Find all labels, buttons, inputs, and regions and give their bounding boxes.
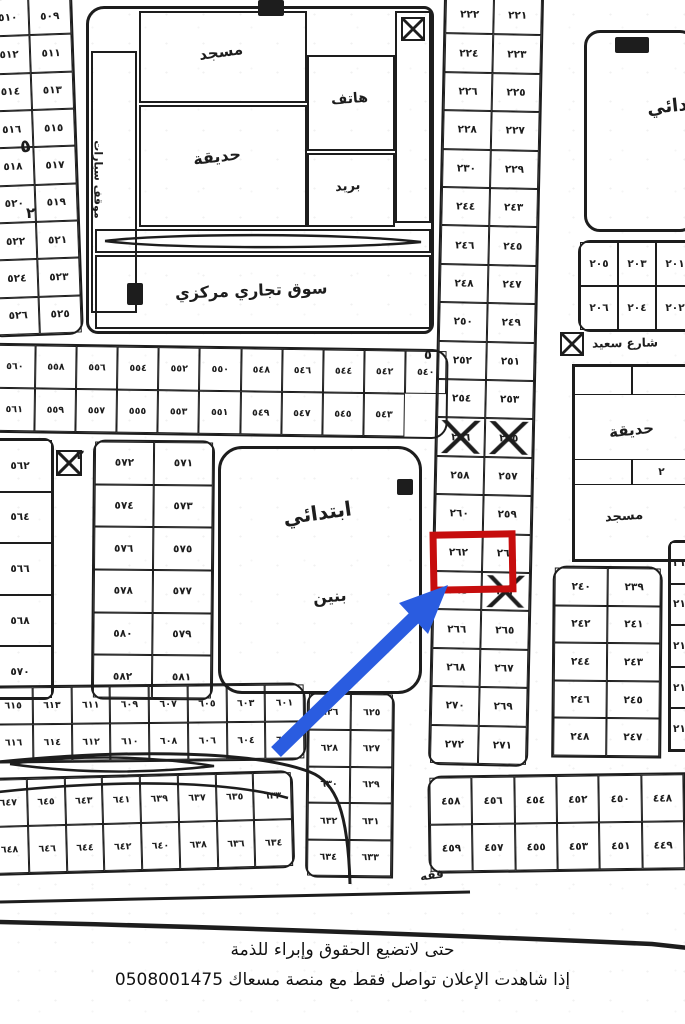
ink-blot — [127, 283, 143, 305]
plot-cell — [632, 365, 685, 395]
plot-cell: ٢٤٤ — [441, 187, 490, 226]
plot-cell: ٢٥٢ — [438, 341, 487, 380]
plot-cell: ٤٥٦ — [472, 777, 515, 825]
plot-cell: ٥١٤ — [0, 73, 32, 112]
plot-cell: ٥٤٤ — [323, 349, 365, 393]
plot-cell: ٦١٦ — [0, 724, 33, 761]
plot-cell: ٦٠٩ — [110, 686, 149, 723]
caption-line1: حتى لاتضيع الحقوق وإبراء للذمة — [0, 936, 685, 966]
plot-cell: ٢٧٢ — [430, 725, 479, 764]
plot-cell: ٦٤٤ — [66, 824, 105, 872]
plot-cell: ٥٧٩ — [152, 613, 211, 656]
plot-cell: ٢٧٠ — [431, 686, 480, 725]
phone-label: هاتف — [330, 90, 368, 109]
market-block: سوق تجاري مركزي — [95, 255, 431, 329]
plot-cell: ٢١٩ — [670, 542, 685, 584]
plot-cell: ٢٤٧ — [606, 718, 659, 756]
plot-cell: ٦٣٤ — [307, 839, 349, 876]
plot-cell: ٢٦٧ — [480, 649, 529, 688]
plot-cell: ٥٧٤ — [94, 484, 153, 527]
plot-strip-bl1: ٦١٥٦١٣٦١١٦٠٩٦٠٧٦٠٥٦٠٣٦٠١٦١٦٦١٤٦١٢٦١٠٦٠٨٦… — [0, 682, 306, 763]
plot-cell: ٢٤٨ — [440, 264, 489, 303]
services-block-nw: موقف سيارات مسجد هاتف حديقة بريد — [86, 6, 434, 334]
plot-cell: ٢٥٠ — [439, 302, 488, 341]
plot-cell: ٦٤٠ — [141, 822, 180, 870]
plot-cell: ٥٧١ — [154, 442, 213, 485]
plot-cell: ٦١١ — [71, 686, 110, 723]
plot-cell: ٢٦٠ — [435, 494, 484, 533]
plot-cell: ٢٤٤ — [554, 643, 607, 681]
plot-cell: ٢٠٢ — [656, 286, 685, 330]
plot-cell: ٥٥٢ — [158, 347, 200, 391]
plot-cell: ٦٢٥ — [351, 694, 393, 731]
caption: حتى لاتضيع الحقوق وإبراء للذمة إذا شاهدت… — [0, 936, 685, 996]
plot-cell: ٥٢١ — [36, 220, 79, 259]
phone-block: هاتف — [307, 55, 395, 151]
plot-cell: ٦٤٥ — [27, 778, 66, 826]
plot-cell: ٥٤٧ — [281, 392, 323, 436]
plot-cell: ٦٤٧ — [0, 779, 28, 827]
plot-cell: ٥٧٣ — [153, 485, 212, 528]
plot-cell: ٥٤٥ — [322, 392, 364, 436]
plot-cell: ٥٥٨ — [35, 345, 77, 389]
plot-cell: ٤٥٣ — [557, 822, 600, 870]
plot-cell: ٢٦٥ — [480, 610, 529, 649]
ink-blot — [258, 0, 284, 16]
walkway-scribble — [97, 231, 429, 251]
plot-strip-farleft: ٥٦٢٥٦٤٥٦٦٥٦٨٥٧٠ — [0, 438, 54, 700]
plot-cell: ٥٥٩ — [34, 388, 76, 432]
plot-cell: ٦٠١ — [265, 684, 304, 721]
plot-cell: ٦٤٣ — [64, 777, 103, 825]
highlighted-plot-box — [429, 530, 516, 593]
plot-cell: ٥٥١ — [199, 391, 241, 435]
post-label: بريد — [334, 178, 361, 195]
plot-cell: ٦٠٥ — [187, 685, 226, 722]
road-mark: ٢ — [26, 204, 35, 222]
plot-cell: ٤٥٨ — [429, 777, 472, 825]
plot-cell: ٦١٥ — [0, 687, 33, 724]
school-center-label-1: ابتدائي — [282, 496, 353, 529]
e-cells-mid: ٢ — [573, 459, 685, 485]
plot-cell: ٥٤٢ — [364, 350, 406, 394]
plot-cell: ٥٠٩ — [28, 0, 71, 35]
plot-cell: ٤٥٥ — [515, 823, 558, 871]
plot-column-center: ٢٢٢٢٢١٢٢٤٢٢٣٢٢٦٢٢٥٢٢٨٢٢٧٢٣٠٢٢٩٢٤٤٢٤٣٢٤٦٢… — [428, 0, 544, 767]
plot-cell: ٦٣٥ — [215, 773, 254, 821]
plot-cell: ٦٤١ — [102, 776, 141, 824]
garden-mosque-block-e: حديقة ٢ مسجد — [572, 364, 685, 562]
post-block: بريد — [307, 153, 395, 227]
plot-cell: ٢٢٤ — [444, 33, 493, 72]
plot-cell: ٦٣٣ — [253, 772, 292, 820]
bottom-street-line — [0, 892, 470, 902]
plot-cell: ٢٤٥ — [607, 681, 660, 719]
plot-cell: ٥٧٢ — [95, 441, 154, 484]
plot-cell: ٥٥٤ — [117, 347, 159, 391]
plot-cell: ٥٢٦ — [0, 297, 40, 336]
street-east-label: شارع سعيد — [592, 335, 658, 350]
parking-label: موقف سيارات — [92, 140, 105, 218]
plot-block-leftcenter: ٥٧٢٥٧١٥٧٤٥٧٣٥٧٦٥٧٥٥٧٨٥٧٧٥٨٠٥٧٩٥٨٢٥٨١ — [91, 439, 215, 700]
plot-cell: ٦٠٤ — [226, 722, 265, 759]
plot-cell: ٢٥١ — [486, 342, 535, 381]
plot-cell: ٢٥٤ — [437, 379, 486, 418]
school-block-center: ابتدائي بنين — [218, 446, 422, 694]
plot-cell: ٥٦٠ — [0, 345, 36, 389]
plot-cell: ٦٢٨ — [308, 730, 350, 767]
plot-cell: ٢٠٣ — [618, 242, 656, 286]
plot-cell: ٢٢٨ — [443, 110, 492, 149]
plot-cell: ٥٦١ — [0, 388, 35, 432]
plot-cell: ٥٧٨ — [94, 569, 153, 612]
plot-cell: ٦١٣ — [32, 687, 71, 724]
plot-cell: ٢٤١ — [607, 606, 660, 644]
plot-cell: ٢٤٦ — [554, 680, 607, 718]
plot-strip-nw-left: ٥١٠٥٠٩٥١٢٥١١٥١٤٥١٣٥١٦٥١٥٥١٨٥١٧٥٢٠٥١٩٥٢٢٥… — [0, 0, 84, 337]
plot-cell: ٦٣١ — [349, 803, 391, 840]
plot-cell: ٦١٢ — [72, 723, 111, 760]
plot-cell: ٥١٢ — [0, 35, 31, 74]
plot-cell: ٦٤٨ — [0, 826, 29, 874]
caption-line2: إذا شاهدت الإعلان تواصل فقط مع منصة مسعا… — [0, 966, 685, 996]
plot-cell: ٢٥٣ — [485, 380, 534, 419]
plot-cell: ٢١٧ — [670, 584, 685, 626]
plot-cell: ٥٥٥ — [117, 390, 159, 434]
plot-cell: ٦١٤ — [33, 724, 72, 761]
plot-strip-ne: ٢٠٥٢٠٣٢٠١٢٠٦٢٠٤٢٠٢ — [578, 240, 685, 332]
plot-cell: ٤٥٩ — [430, 824, 473, 872]
plot-cell: ٥١٣ — [31, 71, 74, 110]
plot-cell: ٥٦٨ — [0, 595, 52, 647]
plot-cell: ٢٥٨ — [436, 456, 485, 495]
plot-cell: ٥٥٣ — [158, 390, 200, 434]
plot-cell: ٥٢٢ — [0, 222, 37, 261]
plot-cell: ٥٤٣ — [363, 393, 405, 437]
e-cells-top — [573, 365, 685, 395]
utility-x-marker — [560, 332, 584, 356]
plot-cell: ٢٤٧ — [488, 265, 537, 304]
plot-cell: ٢٦٨ — [432, 648, 481, 687]
plot-cell: ٦٠٨ — [149, 723, 188, 760]
plot-cell: ٥٢٥ — [39, 295, 82, 334]
mosque-e-label: مسجد — [605, 508, 644, 526]
plot-cell: ٦٣٨ — [179, 821, 218, 869]
plot-sliver-farright: ٢١٩٢١٧٢١٥٢١٣٢١١ — [668, 540, 685, 752]
walkway-band — [95, 229, 431, 253]
garden-e-label: حديقة — [608, 419, 655, 442]
plot-cell: ٢٦٩ — [479, 687, 528, 726]
plot-cell: ٥٥٦ — [76, 346, 118, 390]
plot-cell: ٢٢٩ — [490, 150, 539, 189]
bottom-note: فقه — [419, 866, 444, 883]
plot-cell: ٥١٥ — [32, 109, 75, 148]
school-ne-label: ابتدائي — [646, 92, 685, 119]
plot-cell: ٥٧٦ — [94, 527, 153, 570]
plot-cell: ٤٤٩ — [642, 821, 685, 869]
plot-cell: ٢٠١ — [656, 242, 685, 286]
plot-cell: ٢٦٦ — [432, 609, 481, 648]
plot-strip-br: ٤٥٨٤٥٦٤٥٤٤٥٢٤٥٠٤٤٨٤٥٩٤٥٧٤٥٥٤٥٣٤٥١٤٤٩ — [427, 772, 685, 874]
plot-cell: ٤٥٠ — [599, 775, 642, 823]
school-center-label-2: بنين — [312, 586, 347, 608]
road-mark: ٢ — [76, 448, 84, 463]
mosque-nw-block: مسجد — [139, 11, 307, 103]
plot-cell: ٢٤٣ — [489, 188, 538, 227]
plot-cell: ٢٠٦ — [580, 286, 618, 330]
plot-cell: ٥٧٧ — [153, 570, 212, 613]
plot-cell: ٤٥١ — [599, 822, 642, 870]
plot-cell: ٢٧١ — [478, 726, 527, 765]
ink-blot — [397, 479, 413, 495]
plot-strip-mid: ٥٦٠٥٥٨٥٥٦٥٥٤٥٥٢٥٥٠٥٤٨٥٤٦٥٤٤٥٤٢٥٤٠٥٦١٥٥٩٥… — [0, 343, 449, 439]
plot-cell: ٦٣٤ — [254, 819, 293, 867]
plot-cell: ٢٢٦ — [444, 72, 493, 111]
plot-cell: ٢٠٤ — [618, 286, 656, 330]
plot-strip-bl2: ٦٤٧٦٤٥٦٤٣٦٤١٦٣٩٦٣٧٦٣٥٦٣٣٦٤٨٦٤٦٦٤٤٦٤٢٦٤٠٦… — [0, 770, 295, 876]
plot-cell: ٦٣٧ — [178, 774, 217, 822]
plot-cell: ٢٤٩ — [487, 303, 536, 342]
plot-cell: ٢٤٦ — [440, 225, 489, 264]
plot-cell: ٦٤٢ — [103, 823, 142, 871]
plot-cell: ٤٥٤ — [514, 776, 557, 824]
plot-cell: ٥٤٨ — [241, 348, 283, 392]
plot-cell: ٢٢٥ — [492, 73, 541, 112]
plot-cell: ٦٣٣ — [349, 840, 391, 877]
utility-strip — [395, 11, 431, 223]
plot-cell: ٦٠٢ — [265, 721, 304, 758]
plot-cell: ٢٢١ — [493, 0, 542, 35]
plot-cell: ٥٢٤ — [0, 259, 39, 298]
plot-cell: ٢٥٩ — [483, 495, 532, 534]
plot-cell: ٦٣٢ — [307, 803, 349, 840]
plot-cell: ٢ — [632, 459, 685, 485]
plot-cell: ٤٥٢ — [556, 775, 599, 823]
plot-cell: ٢٤٨ — [553, 718, 606, 756]
plot-cell: ٤٥٧ — [472, 824, 515, 872]
mosque-nw-label: مسجد — [198, 40, 244, 64]
plot-cell: ٥٤٩ — [240, 391, 282, 435]
plot-cell: ٦٣٩ — [140, 775, 179, 823]
plot-cell — [573, 365, 632, 395]
plot-cell: ٢٠٥ — [580, 242, 618, 286]
plot-cell: ٦٣٦ — [216, 820, 255, 868]
garden-nw-block: حديقة — [139, 105, 307, 227]
real-estate-flyer: ٥١٠٥٠٩٥١٢٥١١٥١٤٥١٣٥١٦٥١٥٥١٨٥١٧٥٢٠٥١٩٥٢٢٥… — [0, 0, 685, 1024]
plot-cell: ٥٦٦ — [0, 543, 52, 595]
school-block-ne: ابتدائي — [584, 30, 685, 232]
ink-blot — [615, 37, 649, 53]
plot-cell: ٦٠٧ — [149, 686, 188, 723]
plot-cell — [573, 459, 632, 485]
plot-cell: ٢٥٧ — [484, 457, 533, 496]
plot-cell: ٥١٠ — [0, 0, 29, 37]
plot-cell: ٥١٧ — [33, 146, 76, 185]
plot-cell: ٢٤٠ — [554, 568, 607, 606]
plot-cell: ٢٢٢ — [445, 0, 494, 34]
plot-cell: ٥٦٢ — [0, 440, 52, 492]
plot-cell: ٦٢٦ — [309, 694, 351, 731]
plot-cell: ٢١٥ — [670, 625, 685, 667]
plot-cell: ٦٠٦ — [188, 722, 227, 759]
plot-cell: ٥٨٠ — [93, 612, 152, 655]
plot-cell: ٢٥٥ — [484, 418, 533, 457]
plot-cell: ٦٤٦ — [28, 825, 67, 873]
plot-cell: ٥٥٠ — [199, 348, 241, 392]
utility-x-marker — [401, 17, 425, 41]
plot-cell: ٢١١ — [670, 708, 685, 750]
plot-cell: ٥٧٥ — [153, 527, 212, 570]
plot-cell: ٢٢٧ — [491, 111, 540, 150]
plot-block-rightcenter: ٢٤٠٢٣٩٢٤٢٢٤١٢٤٤٢٤٣٢٤٦٢٤٥٢٤٨٢٤٧ — [551, 566, 663, 759]
plot-cell: ٥٥٧ — [76, 389, 118, 433]
road-mark: ٥ — [424, 348, 432, 363]
plot-cell: ٥٤٦ — [282, 349, 324, 393]
plot-cell: ٥٦٤ — [0, 492, 52, 544]
plot-cell: ٢٤٥ — [488, 226, 537, 265]
market-label: سوق تجاري مركزي — [175, 278, 328, 302]
plot-cell: ٦٠٣ — [226, 685, 265, 722]
plot-cell: ٢١٣ — [670, 667, 685, 709]
plot-cell: ٢٢٣ — [492, 34, 541, 73]
garden-nw-label: حديقة — [192, 144, 242, 169]
plot-cell: ٥١١ — [29, 34, 72, 73]
plot-cell: ٢٣٩ — [607, 568, 660, 606]
plot-cell: ٦٣٠ — [308, 766, 350, 803]
plot-cell: ٦١٠ — [110, 723, 149, 760]
plot-cell: ٤٤٨ — [641, 774, 684, 822]
plot-cell: ٢٣٠ — [442, 149, 491, 188]
plot-cell: ٢٤٣ — [607, 643, 660, 681]
plot-column-bl: ٦٢٦٦٢٥٦٢٨٦٢٧٦٣٠٦٢٩٦٣٢٦٣١٦٣٤٦٣٣ — [305, 692, 395, 879]
plot-cell: ٦٢٩ — [350, 767, 392, 804]
plot-cell: ٥٢٣ — [37, 258, 80, 297]
plot-cell: ٥١٩ — [35, 183, 78, 222]
plot-cell: ٢٤٢ — [554, 605, 607, 643]
plat-map: ٥١٠٥٠٩٥١٢٥١١٥١٤٥١٣٥١٦٥١٥٥١٨٥١٧٥٢٠٥١٩٥٢٢٥… — [0, 0, 685, 920]
plot-cell: ٦٢٧ — [350, 730, 392, 767]
plot-cell: ٢٥٦ — [436, 417, 485, 456]
